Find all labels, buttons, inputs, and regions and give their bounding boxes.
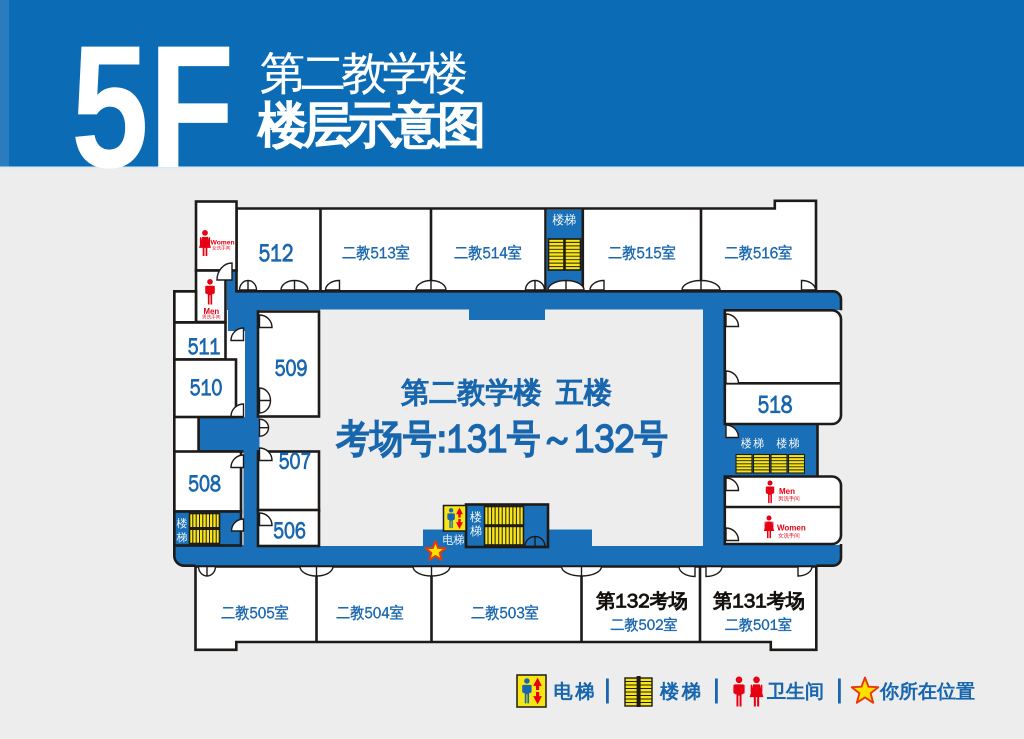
- svg-text:Women: Women: [211, 239, 235, 246]
- svg-text:Women: Women: [777, 524, 806, 533]
- svg-text:5F: 5F: [71, 9, 234, 204]
- svg-text:Men: Men: [204, 307, 220, 316]
- svg-text:Men: Men: [779, 487, 795, 496]
